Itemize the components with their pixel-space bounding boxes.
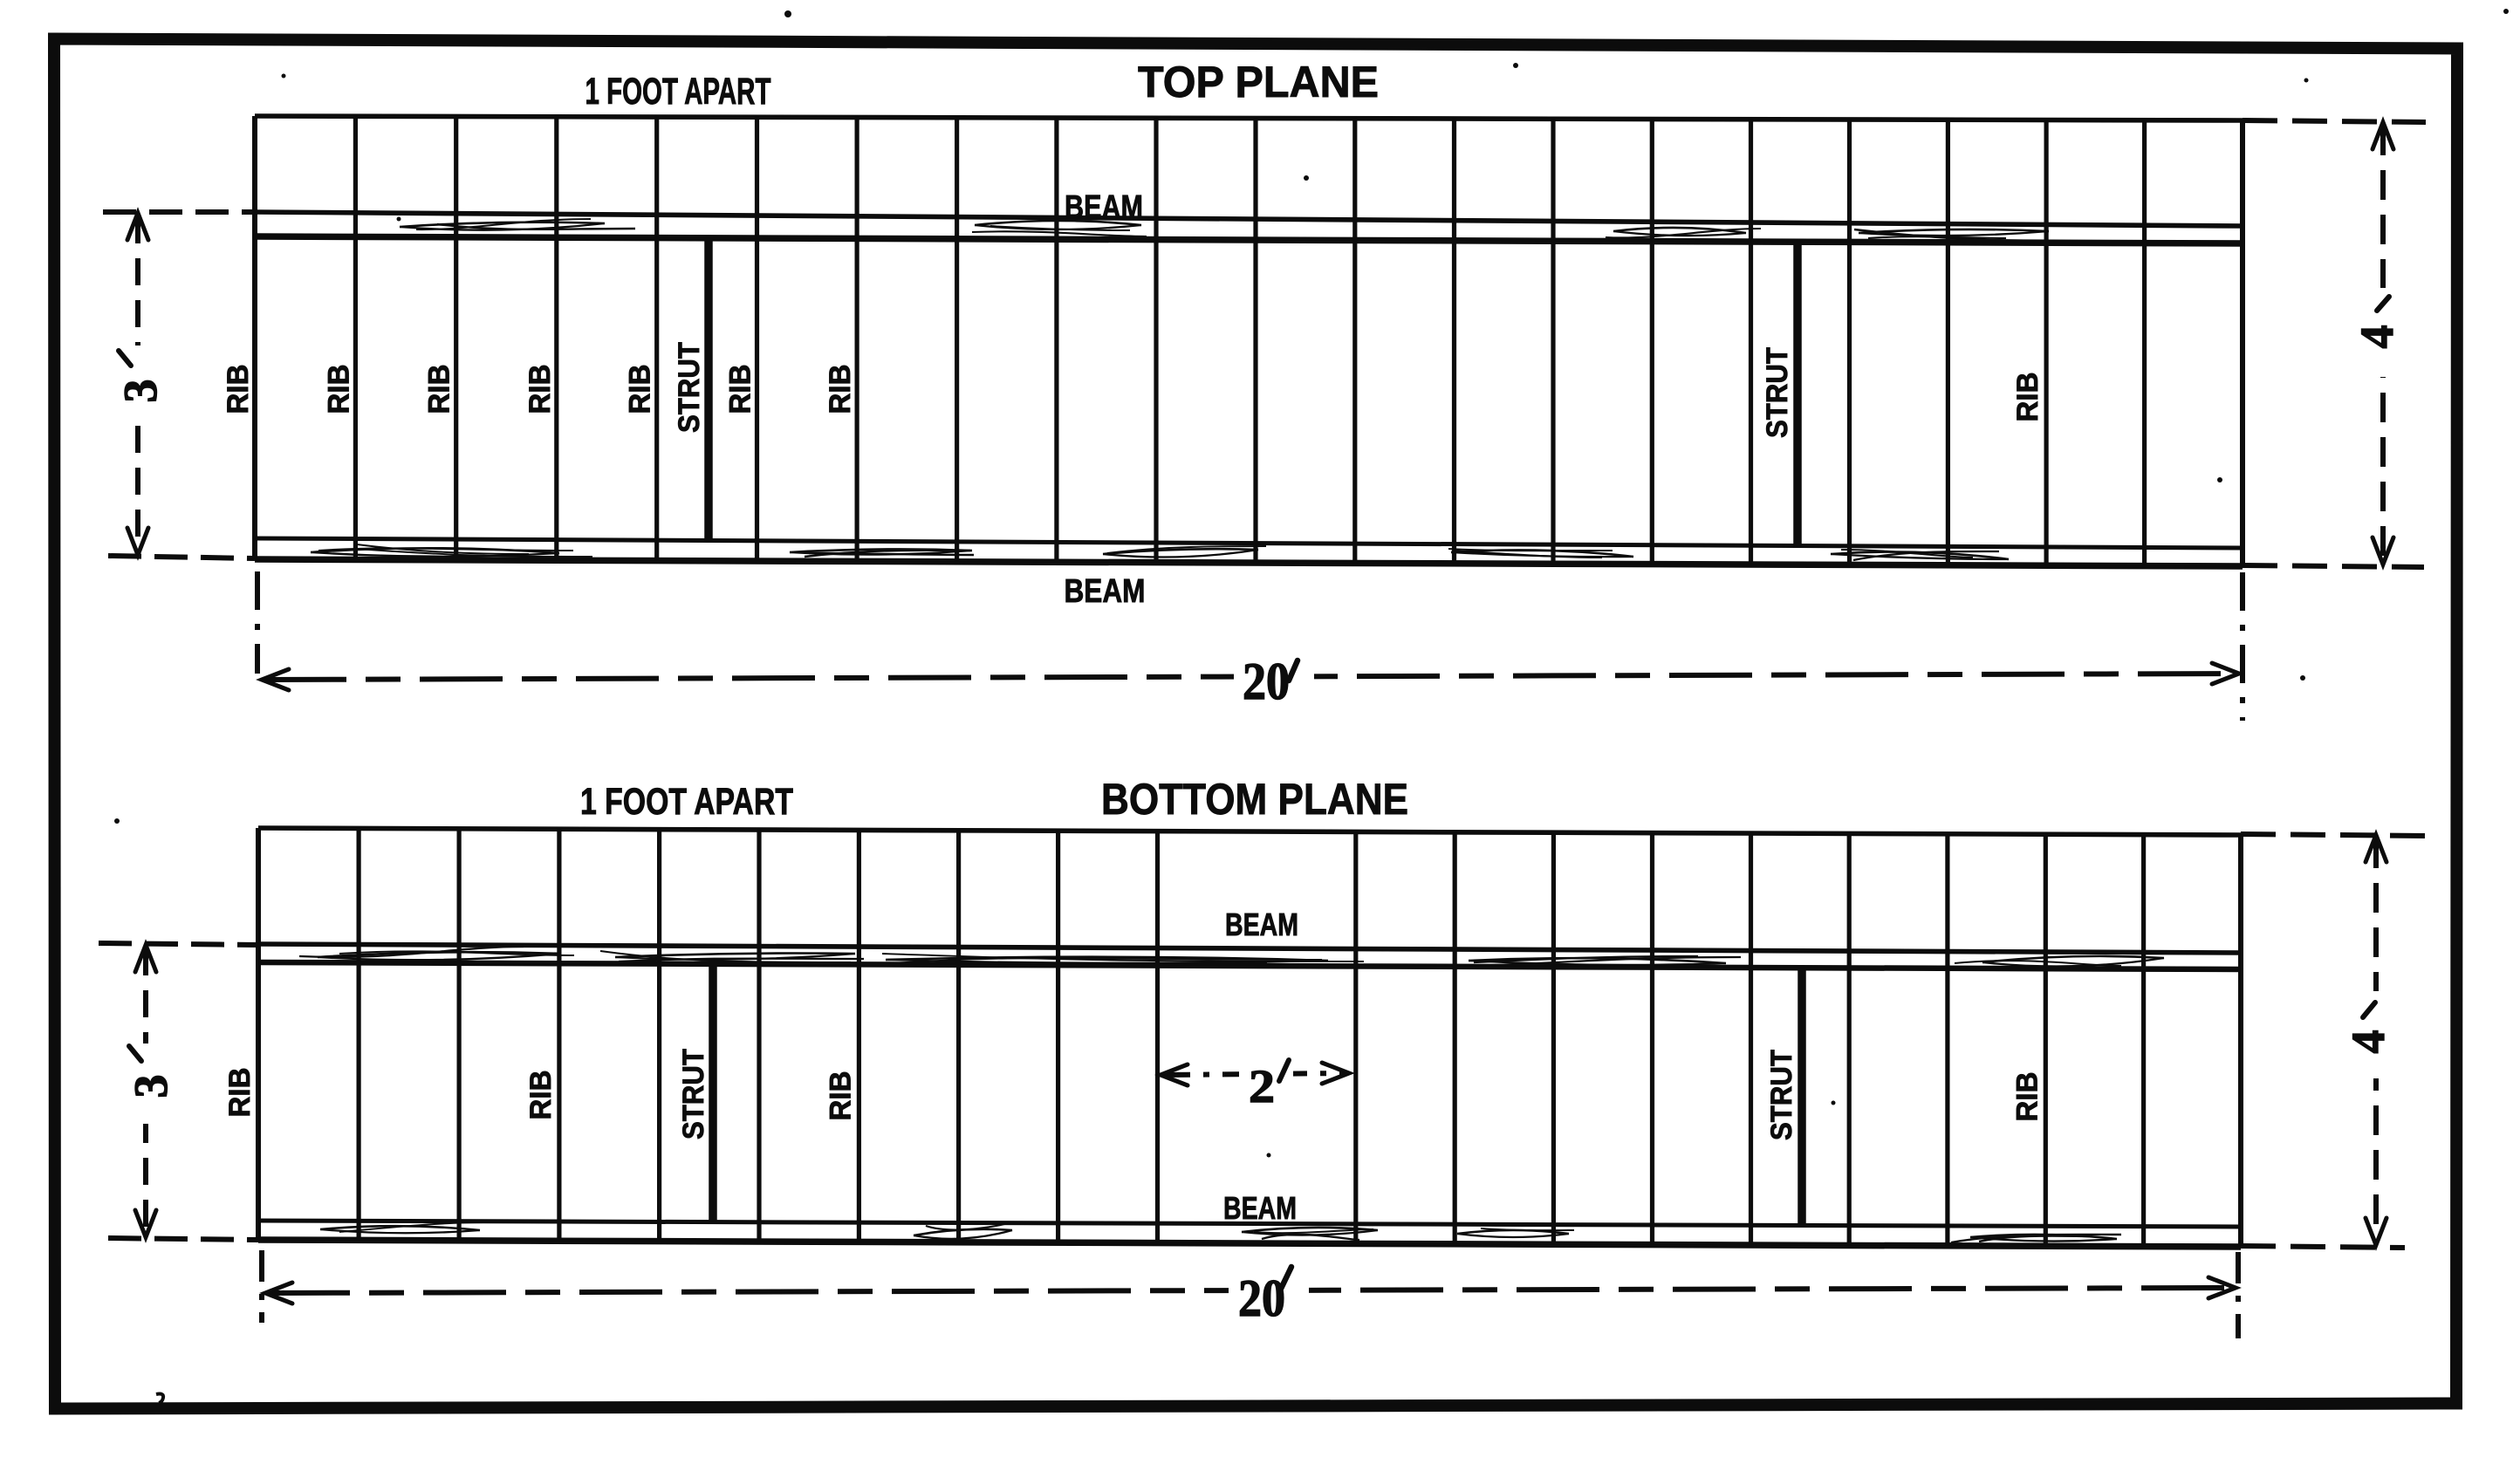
svg-text:BEAM: BEAM [1065, 573, 1146, 610]
svg-text:BEAM: BEAM [1223, 1190, 1297, 1226]
svg-text:1 FOOT APART: 1 FOOT APART [580, 781, 793, 823]
svg-text:RIB: RIB [824, 365, 857, 414]
svg-text:BEAM: BEAM [1065, 189, 1143, 226]
svg-text:BOTTOM PLANE: BOTTOM PLANE [1101, 775, 1408, 824]
svg-text:4: 4 [2351, 325, 2403, 349]
svg-text:TOP PLANE: TOP PLANE [1138, 58, 1379, 106]
svg-text:RIB: RIB [824, 1071, 857, 1121]
svg-text:4: 4 [2342, 1030, 2394, 1054]
svg-text:RIB: RIB [724, 365, 757, 414]
svg-text:RIB: RIB [423, 365, 456, 414]
svg-text:3: 3 [114, 380, 167, 403]
svg-text:RIB: RIB [2011, 373, 2044, 422]
svg-text:RIB: RIB [322, 365, 355, 414]
svg-text:RIB: RIB [524, 1071, 558, 1120]
svg-text:STRUT: STRUT [1765, 1050, 1798, 1140]
svg-text:RIB: RIB [524, 365, 557, 414]
svg-text:RIB: RIB [2010, 1072, 2044, 1122]
svg-text:STRUT: STRUT [673, 342, 706, 433]
svg-text:20: 20 [1238, 1269, 1285, 1327]
svg-text:RIB: RIB [624, 365, 657, 414]
svg-text:RIB: RIB [223, 1068, 257, 1118]
svg-text:BEAM: BEAM [1225, 907, 1298, 942]
svg-text:1 FOOT APART: 1 FOOT APART [585, 71, 771, 113]
svg-text:STRUT: STRUT [1761, 347, 1794, 438]
svg-text:RIB: RIB [222, 365, 255, 414]
svg-text:3: 3 [125, 1075, 177, 1098]
svg-text:2: 2 [1249, 1060, 1275, 1112]
svg-text:20: 20 [1243, 653, 1290, 710]
svg-text:STRUT: STRUT [677, 1049, 710, 1139]
